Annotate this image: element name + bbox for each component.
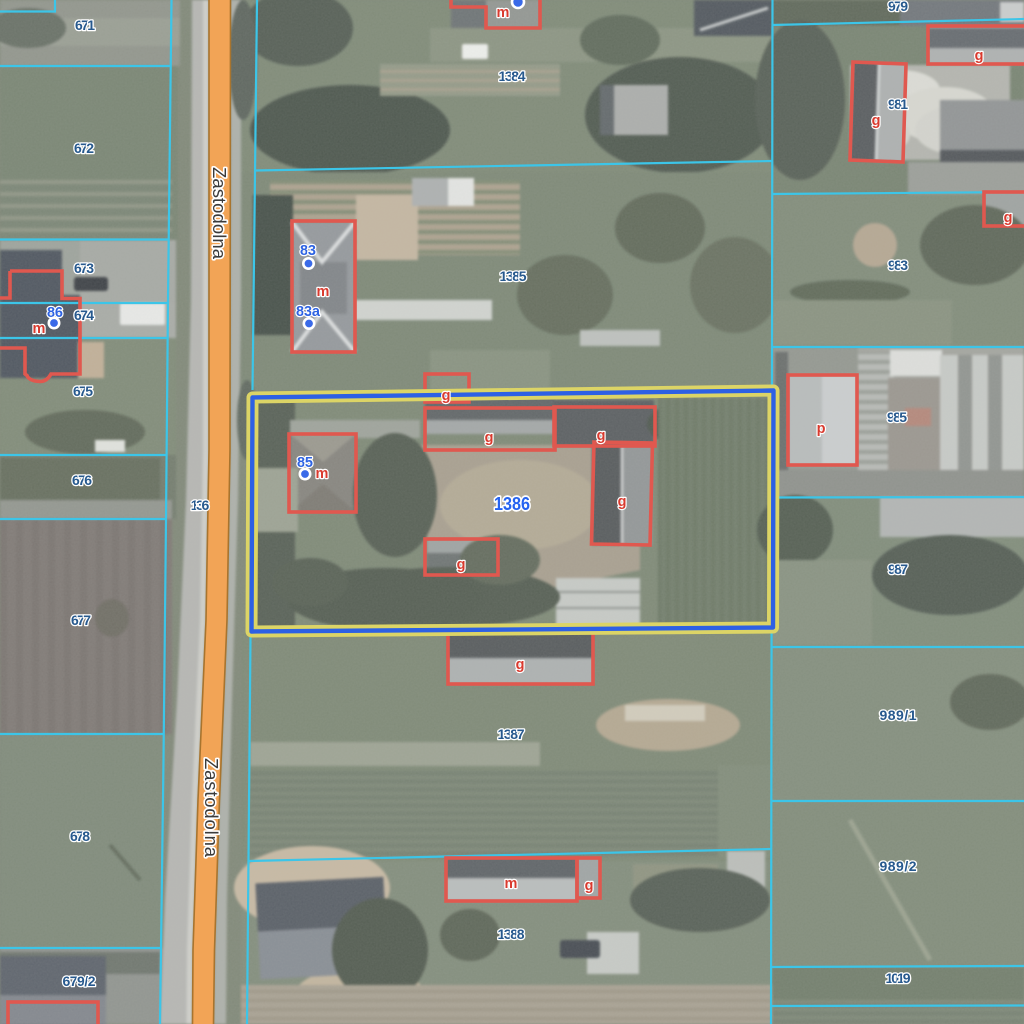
svg-text:1386: 1386 [494,493,530,514]
svg-text:m: m [497,5,510,21]
svg-text:985: 985 [887,409,907,425]
svg-text:g: g [457,557,466,573]
svg-text:p: p [817,421,826,437]
svg-text:677: 677 [71,612,91,628]
svg-text:1019: 1019 [886,970,911,986]
svg-text:g: g [585,878,594,894]
svg-text:Zastodolna: Zastodolna [201,758,222,858]
svg-text:1388: 1388 [498,926,525,942]
svg-text:m: m [316,466,329,482]
svg-text:675: 675 [73,383,93,399]
svg-text:83: 83 [300,243,316,259]
svg-text:679/2: 679/2 [63,973,96,989]
svg-text:979: 979 [888,0,908,14]
svg-text:1384: 1384 [499,68,526,84]
svg-text:m: m [33,321,46,337]
svg-text:674: 674 [74,307,94,323]
svg-text:987: 987 [888,561,908,577]
svg-text:m: m [317,284,330,300]
svg-text:g: g [872,113,881,129]
svg-text:1385: 1385 [500,268,527,284]
svg-text:989/2: 989/2 [880,858,917,874]
svg-text:981: 981 [888,96,908,112]
svg-text:671: 671 [75,17,95,33]
svg-text:983: 983 [888,257,908,273]
svg-text:g: g [597,428,606,444]
svg-text:g: g [516,657,525,673]
svg-text:g: g [485,430,494,446]
svg-text:m: m [505,876,518,892]
svg-text:g: g [1004,210,1013,226]
svg-text:673: 673 [74,260,94,276]
svg-text:Zastodolna: Zastodolna [209,167,230,260]
svg-text:989/1: 989/1 [880,707,917,723]
svg-text:672: 672 [74,140,94,156]
svg-text:g: g [618,494,627,510]
svg-text:g: g [442,388,451,404]
svg-text:676: 676 [72,472,92,488]
svg-text:g: g [975,48,984,64]
svg-text:1387: 1387 [498,726,525,742]
svg-text:136: 136 [191,497,210,513]
svg-text:678: 678 [70,828,90,844]
